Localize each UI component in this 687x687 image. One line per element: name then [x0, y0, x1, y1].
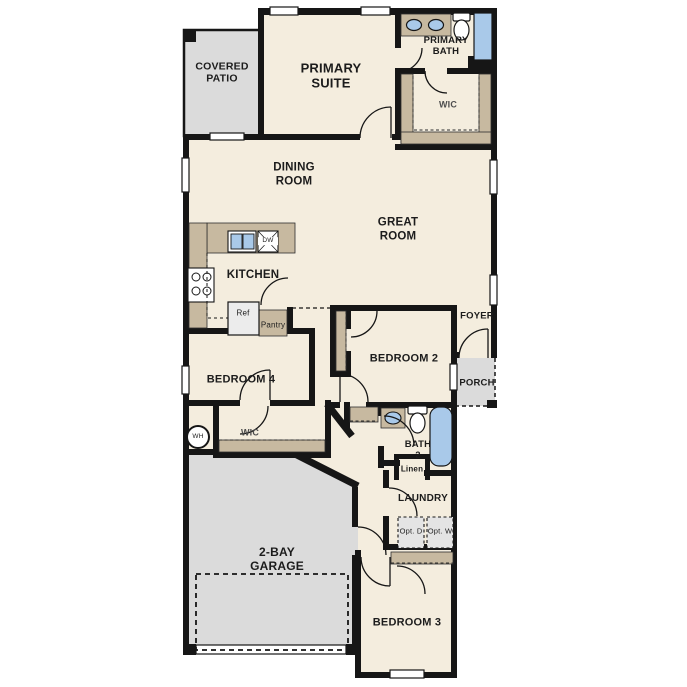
fixture-label-ref: Ref [228, 308, 258, 317]
bedroom4-wic-shelf [219, 440, 325, 452]
kitchen-sink-bowl-1-icon [231, 234, 242, 249]
room-label-dining-room: DINING ROOM [265, 161, 323, 188]
room-label-bedroom4-wic: WIC [225, 428, 275, 439]
foyer-floor [455, 300, 495, 358]
floor-plan: COVERED PATIO PRIMARY SUITE PRIMARY BATH… [0, 0, 687, 687]
room-label-foyer: FOYER [453, 310, 501, 321]
window-bedroom3 [390, 670, 424, 678]
patio-slider-door [210, 133, 244, 140]
room-label-primary-suite: PRIMARY SUITE [286, 61, 376, 92]
fixture-label-dw: DW [258, 237, 278, 245]
room-label-covered-patio: COVERED PATIO [191, 61, 253, 86]
room-label-linen: Linen [392, 464, 432, 473]
primary-shower-icon [474, 13, 492, 60]
room-label-bedroom-3: BEDROOM 3 [357, 617, 457, 630]
room-label-kitchen: KITCHEN [208, 269, 298, 283]
primary-wic-shelf-bottom [401, 132, 491, 144]
window-right-greatroom-2 [490, 275, 497, 305]
primary-sink-2-icon [429, 20, 444, 31]
fixture-label-wh: WH [187, 433, 209, 441]
floor-plan-drawing [0, 0, 687, 687]
window-left-bedroom4 [182, 366, 189, 394]
bedroom2-closet-shelf [336, 311, 346, 371]
window-suite-2 [361, 7, 390, 15]
refrigerator-icon [228, 302, 259, 335]
fixture-label-pantry: Pantry [253, 320, 293, 329]
room-label-bedroom-4: BEDROOM 4 [191, 374, 291, 387]
room-label-laundry: LAUNDRY [383, 493, 463, 505]
kitchen-sink-bowl-2-icon [243, 234, 254, 249]
room-label-great-room: GREAT ROOM [373, 216, 423, 243]
fixture-label-opt-dryer: Opt. D [398, 528, 424, 537]
hall-closet-shelf [350, 407, 378, 422]
room-label-bedroom-2: BEDROOM 2 [354, 353, 454, 366]
room-label-garage: 2-BAY GARAGE [237, 545, 317, 573]
bath2-sink-icon [385, 412, 401, 424]
room-label-porch: PORCH [453, 377, 501, 388]
room-label-primary-wic: WIC [428, 100, 468, 111]
window-right-greatroom-1 [490, 160, 497, 194]
fixture-label-opt-washer: Opt. W [427, 528, 453, 537]
primary-sink-1-icon [407, 20, 422, 31]
bath2-toilet-icon [410, 413, 425, 433]
bedroom3-closet-shelf [391, 552, 453, 564]
room-label-primary-bath: PRIMARY BATH [417, 35, 475, 57]
window-left-dining [182, 158, 189, 192]
window-suite-1 [270, 7, 298, 15]
room-label-bath-2: BATH 2 [401, 439, 435, 461]
